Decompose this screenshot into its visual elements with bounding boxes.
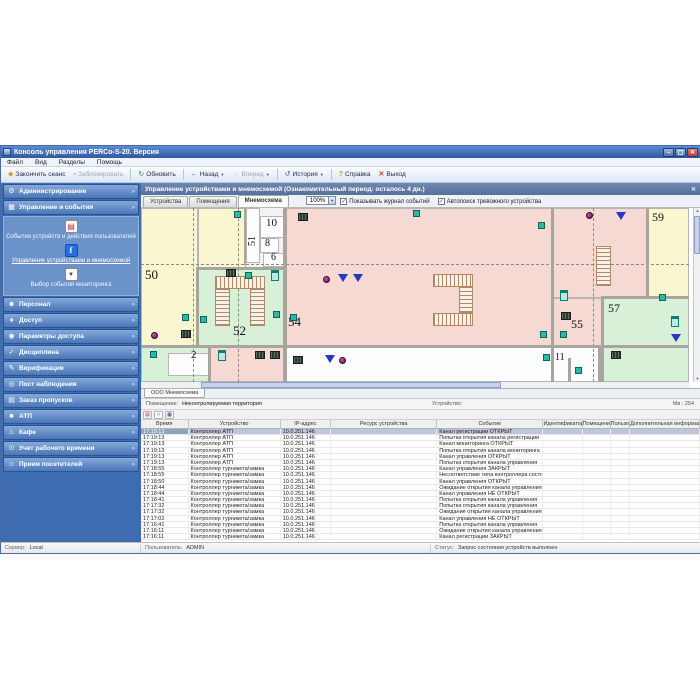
log-cell xyxy=(611,503,631,508)
menu-item-помощь[interactable]: Помощь xyxy=(91,158,128,167)
room-number-label: 8 xyxy=(265,239,270,249)
discipline-icon: ✓ xyxy=(6,347,17,358)
main-panel: Управление устройствами и мнемосхемой (О… xyxy=(141,183,700,542)
log-cell: Канал регистрации ЗАКРЫТ xyxy=(437,534,543,539)
log-cell: Контроллер турникета/замка xyxy=(189,479,281,484)
sidebar-subitem-label: Управление устройствами и мнемосхемой xyxy=(6,258,136,265)
sidebar-section-watch[interactable]: ◎Пост наблюдения» xyxy=(3,377,139,392)
log-cell xyxy=(331,429,437,434)
reader-icon[interactable] xyxy=(245,272,252,279)
control-icon: f xyxy=(65,244,78,257)
log-cell xyxy=(543,534,582,539)
funnel-icon[interactable] xyxy=(616,212,626,220)
map-room[interactable] xyxy=(168,353,210,376)
log-cell: Контроллер турникета/замка xyxy=(189,503,281,508)
log-cell xyxy=(543,503,582,508)
stairs xyxy=(459,287,473,313)
log-cell xyxy=(630,454,700,459)
log-cell xyxy=(611,448,631,453)
log-cell xyxy=(543,497,582,502)
chevron-icon: » xyxy=(132,334,135,340)
room-value: Неконтролируемая территория xyxy=(182,401,262,407)
log-cell xyxy=(583,509,611,514)
menu-bar: ФайлВидРазделыПомощь xyxy=(1,158,700,167)
room-number-label: 57 xyxy=(608,302,620,314)
log-cell xyxy=(611,528,631,533)
camera-icon[interactable] xyxy=(151,332,158,339)
window-title: Консоль управления PERCo-S-20. Версия xyxy=(14,149,662,156)
stairs xyxy=(433,313,473,326)
turnstile-icon[interactable] xyxy=(611,351,621,359)
server-label: Сервер: xyxy=(5,545,26,551)
key-icon: ♦ xyxy=(6,315,17,326)
refresh-icon: ↻ xyxy=(138,171,144,178)
mnemoscheme-tab[interactable]: ООО Мнемосхема xyxy=(144,389,205,398)
log-column-header[interactable]: Помещение xyxy=(583,420,611,428)
log-cell xyxy=(543,491,582,496)
log-cell xyxy=(543,509,582,514)
map-room[interactable] xyxy=(285,347,553,382)
status-bar: Сервер: Local Пользователь: ADMIN Статус… xyxy=(1,542,700,553)
panel-close-icon[interactable]: ✕ xyxy=(691,186,696,193)
reader-icon[interactable] xyxy=(538,222,545,229)
room-number-label: 10 xyxy=(266,218,277,229)
log-cell: 17:18:41 xyxy=(141,497,189,502)
log-cell xyxy=(611,497,631,502)
tab-устройства[interactable]: Устройства xyxy=(143,196,188,207)
log-column-header[interactable]: Пользователь xyxy=(611,420,631,428)
log-cell xyxy=(583,491,611,496)
reader-icon[interactable] xyxy=(575,367,582,374)
toolbar-back-button[interactable]: ←Назад▼ xyxy=(187,170,229,179)
log-cell: 10.0.251.146 xyxy=(281,435,331,440)
sidebar-subitem-monitor[interactable]: ▼Выбор событий мониторинга xyxy=(6,268,136,289)
camera-icon[interactable] xyxy=(323,276,330,283)
sidebar-subitem-control[interactable]: fУправление устройствами и мнемосхемой xyxy=(6,244,136,265)
reader-icon[interactable] xyxy=(290,314,297,321)
log-cell xyxy=(331,516,437,521)
stairs xyxy=(215,289,230,326)
sidebar-subitem-label: События устройств и действия пользовател… xyxy=(6,234,136,241)
sidebar-section-label: АТП xyxy=(19,413,132,420)
log-cell xyxy=(611,485,631,490)
session-icon: ◆ xyxy=(8,171,13,178)
log-cell xyxy=(583,479,611,484)
sidebar-section-label: Кафе xyxy=(19,429,132,436)
log-cell: Ожидание открытия канала управления xyxy=(437,528,543,533)
sidebar-section-label: Учет рабочего времени xyxy=(19,445,132,452)
log-cell xyxy=(331,509,437,514)
device-label: Устройство: xyxy=(432,401,462,407)
log-cell: Канал мониторинга ОТКРЫТ xyxy=(437,441,543,446)
sidebar-section-time[interactable]: ⊙Учет рабочего времени» xyxy=(3,441,139,456)
map-horizontal-scrollbar[interactable] xyxy=(141,381,689,388)
reader-icon[interactable] xyxy=(540,331,547,338)
pass-icon: ▤ xyxy=(6,395,17,406)
sidebar-section-label: Администрирование xyxy=(19,188,132,195)
log-cell xyxy=(630,441,700,446)
log-cell xyxy=(611,491,631,496)
log-cell: 10.0.251.146 xyxy=(281,522,331,527)
log-cell xyxy=(611,509,631,514)
chevron-icon: » xyxy=(132,366,135,372)
sidebar-section-pass[interactable]: ▤Заказ пропусков» xyxy=(3,393,139,408)
turnstile-icon[interactable] xyxy=(561,312,571,320)
log-cell xyxy=(630,534,700,539)
funnel-icon[interactable] xyxy=(671,334,681,342)
log-cell xyxy=(331,448,437,453)
log-cell xyxy=(583,516,611,521)
toolbar-separator xyxy=(130,169,131,180)
lock-icon: ▪ xyxy=(74,171,76,178)
toolbar-button-label: Закончить сеанс xyxy=(15,171,65,178)
log-cell: Попытка открытия канала управления xyxy=(437,503,543,508)
chevron-icon: » xyxy=(132,398,135,404)
log-cell xyxy=(611,441,631,446)
log-cell: Контроллер турникета/замка xyxy=(189,509,281,514)
chevron-icon: » xyxy=(132,430,135,436)
log-cell: Попытка открытия канала управления xyxy=(437,522,543,527)
log-cell: Несоответствие типа контроллера состояни… xyxy=(437,472,543,477)
reader-icon[interactable] xyxy=(234,211,241,218)
log-cell xyxy=(543,460,582,465)
door-icon[interactable] xyxy=(671,316,679,327)
turnstile-icon[interactable] xyxy=(181,330,191,338)
log-cell xyxy=(583,466,611,471)
log-cell xyxy=(583,441,611,446)
log-column-header[interactable]: Событие xyxy=(437,420,543,428)
room-number-label: 50 xyxy=(145,268,158,281)
close-button[interactable]: ✕ xyxy=(687,148,698,157)
log-cell: Попытка открытия канала управления xyxy=(437,497,543,502)
log-cell xyxy=(543,516,582,521)
sidebar-section-gear[interactable]: ⚙Администрирование» xyxy=(3,184,139,199)
sidebar-section-label: Управление и события xyxy=(19,204,132,211)
log-cell: 17:19:13 xyxy=(141,429,189,434)
sidebar-subitem-log[interactable]: ▤События устройств и действия пользовате… xyxy=(6,220,136,241)
chevron-icon: » xyxy=(132,189,135,195)
log-cell xyxy=(630,491,700,496)
log-filter-icon[interactable]: ▤ xyxy=(143,411,152,419)
log-cell: Контроллер АТП xyxy=(189,448,281,453)
chevron-down-icon: ▼ xyxy=(320,172,324,177)
log-cell xyxy=(331,522,437,527)
log-cell: Контроллер турникета/замка xyxy=(189,472,281,477)
log-cell: 17:19:13 xyxy=(141,448,189,453)
log-cell xyxy=(630,435,700,440)
chevron-down-icon: ▼ xyxy=(266,172,270,177)
log-cell xyxy=(583,472,611,477)
events-icon: ▦ xyxy=(6,202,17,213)
sidebar-section-cafe[interactable]: ♨Кафе» xyxy=(3,425,139,440)
stairs xyxy=(215,276,265,289)
menu-item-разделы[interactable]: Разделы xyxy=(53,158,91,167)
user-label: Пользователь: xyxy=(145,545,182,551)
map-vertical-scrollbar[interactable]: ▲ ▼ xyxy=(693,208,700,382)
reader-icon[interactable] xyxy=(182,314,189,321)
floor-plan[interactable]: 505110865254555957211 xyxy=(141,208,689,382)
log-cell: Контроллер турникета/замка xyxy=(189,516,281,521)
log-icon: ▤ xyxy=(65,220,78,233)
sidebar-section-events[interactable]: ▦Управление и события» xyxy=(3,200,139,215)
sidebar-section-visitors[interactable]: ☺Прием посетителей» xyxy=(3,457,139,472)
log-cell xyxy=(331,472,437,477)
exit-icon: ✕ xyxy=(379,171,385,178)
sidebar: ⚙Администрирование»▦Управление и события… xyxy=(1,183,141,542)
print-icon[interactable]: ▦ xyxy=(165,411,174,419)
log-cell xyxy=(331,454,437,459)
log-cell: Контроллер турникета/замка xyxy=(189,466,281,471)
room-number-label: 59 xyxy=(652,211,664,223)
log-cell: 10.0.251.146 xyxy=(281,497,331,502)
log-cell xyxy=(630,460,700,465)
log-cell: Канал управления ОТКРЫТ xyxy=(437,454,543,459)
toolbar-separator xyxy=(277,169,278,180)
log-column-header[interactable]: Время xyxy=(141,420,189,428)
log-cell: 10.0.251.146 xyxy=(281,448,331,453)
turnstile-icon[interactable] xyxy=(298,213,308,221)
log-cell: 17:19:13 xyxy=(141,454,189,459)
toolbar-forward-button: →Вперед▼ xyxy=(228,170,273,179)
stairs xyxy=(433,274,473,287)
log-cell xyxy=(543,528,582,533)
chevron-down-icon: ▼ xyxy=(220,172,224,177)
chevron-icon: » xyxy=(132,462,135,468)
chevron-icon: » xyxy=(132,205,135,211)
reader-icon[interactable] xyxy=(659,294,666,301)
log-cell: Попытка открытия канала мониторинга xyxy=(437,448,543,453)
stairs xyxy=(596,246,611,286)
tab-row: УстройстваПомещенияМнемосхема 100% ▼ ✓ П… xyxy=(141,195,700,208)
log-cell: 10.0.251.146 xyxy=(281,491,331,496)
chevron-icon: » xyxy=(132,318,135,324)
status-label: Статус: xyxy=(435,545,454,551)
log-cell xyxy=(611,435,631,440)
room-number-label: 55 xyxy=(571,318,583,330)
sidebar-section-person[interactable]: ☻Персонал» xyxy=(3,297,139,312)
log-cell: 17:18:44 xyxy=(141,485,189,490)
history-icon: ↺ xyxy=(285,171,291,178)
log-row[interactable]: 17:16:11Контроллер турникета/замка10.0.2… xyxy=(141,534,700,540)
watch-icon: ◎ xyxy=(6,379,17,390)
log-cell xyxy=(630,522,700,527)
event-log-body: 17:19:13Контроллер АТП10.0.251.146Канал … xyxy=(141,429,700,540)
log-cell xyxy=(630,429,700,434)
log-cell xyxy=(331,503,437,508)
log-cell xyxy=(543,485,582,490)
log-cell xyxy=(543,522,582,527)
sidebar-section-key[interactable]: ♦Доступ» xyxy=(3,313,139,328)
log-cell: 10.0.251.146 xyxy=(281,472,331,477)
camera-icon[interactable] xyxy=(339,357,346,364)
log-cell xyxy=(543,454,582,459)
title-bar[interactable]: Консоль управления PERCo-S-20. Версия – … xyxy=(1,146,700,158)
log-cell xyxy=(583,454,611,459)
sidebar-section-params[interactable]: ◉Параметры доступа» xyxy=(3,329,139,344)
log-cell: Контроллер АТП xyxy=(189,435,281,440)
door-icon[interactable] xyxy=(271,270,279,281)
room-number-label: 52 xyxy=(233,324,246,337)
tab-помещения[interactable]: Помещения xyxy=(189,196,236,207)
sidebar-section-label: Доступ xyxy=(19,317,132,324)
checkbox-check-icon: ✓ xyxy=(438,198,445,205)
log-cell: 10.0.251.146 xyxy=(281,534,331,539)
log-cell xyxy=(630,466,700,471)
forward-icon: → xyxy=(232,171,239,178)
log-cell xyxy=(630,472,700,477)
log-cell xyxy=(543,472,582,477)
help-icon: ? xyxy=(339,171,343,178)
log-cell xyxy=(331,479,437,484)
toolbar-history-button[interactable]: ↺История▼ xyxy=(281,170,328,179)
turnstile-icon[interactable] xyxy=(255,351,265,359)
toolbar: ◆Закончить сеанс▪Заблокировать↻Обновить←… xyxy=(1,167,700,183)
stairs xyxy=(250,289,265,326)
log-column-header[interactable]: Идентификатор xyxy=(543,420,582,428)
log-column-header[interactable]: Дополнительная информация xyxy=(630,420,700,428)
sidebar-section-label: Параметры доступа xyxy=(19,333,132,340)
sidebar-section-discipline[interactable]: ✓Дисциплина» xyxy=(3,345,139,360)
map-status-bar: Помещение: Неконтролируемая территория У… xyxy=(141,399,700,410)
reader-icon[interactable] xyxy=(543,354,550,361)
log-cell: Ожидание открытия канала управления xyxy=(437,485,543,490)
toolbar-refresh-button[interactable]: ↻Обновить xyxy=(134,170,179,179)
log-cell xyxy=(543,466,582,471)
toolbar-button-label: Выход xyxy=(386,171,405,178)
log-cell xyxy=(583,435,611,440)
log-cell: 10.0.251.146 xyxy=(281,479,331,484)
toolbar-exit-button[interactable]: ✕Выход xyxy=(375,170,410,179)
log-cell: 17:18:55 xyxy=(141,466,189,471)
chevron-icon: » xyxy=(132,446,135,452)
log-cell: 10.0.251.146 xyxy=(281,528,331,533)
chevron-icon: » xyxy=(132,382,135,388)
log-cell: 10.0.251.146 xyxy=(281,503,331,508)
log-cell: 17:16:41 xyxy=(141,522,189,527)
minimize-button[interactable]: – xyxy=(663,148,674,157)
log-cell: 17:16:11 xyxy=(141,534,189,539)
user-value: ADMIN xyxy=(186,545,204,551)
funnel-icon[interactable] xyxy=(325,355,335,363)
room-number-label: 6 xyxy=(271,253,276,263)
reader-icon[interactable] xyxy=(560,331,567,338)
sidebar-section-verify[interactable]: ✎Верификация» xyxy=(3,361,139,376)
log-cell: Канал регистрации ОТКРЫТ xyxy=(437,429,543,434)
chevron-down-icon[interactable]: ▼ xyxy=(328,197,335,204)
log-column-header[interactable]: IP-адрес xyxy=(281,420,331,428)
log-cell xyxy=(583,448,611,453)
funnel-icon[interactable] xyxy=(338,274,348,282)
log-cell: 17:19:13 xyxy=(141,435,189,440)
log-cell xyxy=(630,509,700,514)
mnemoscheme-area: 505110865254555957211 ▲ ▼ xyxy=(141,208,700,389)
toolbar-help-button[interactable]: ?Справка xyxy=(335,170,375,179)
autosearch-checkbox[interactable]: ✓ Автопоиск тревожного устройства xyxy=(438,198,542,205)
log-cell: Канал управления НЕ ОТКРЫТ xyxy=(437,516,543,521)
maximize-button[interactable]: ▢ xyxy=(675,148,686,157)
visitors-icon: ☺ xyxy=(6,459,17,470)
log-cell xyxy=(543,479,582,484)
chevron-icon: » xyxy=(132,414,135,420)
toolbar-session-button[interactable]: ◆Закончить сеанс xyxy=(4,170,70,179)
show-log-checkbox[interactable]: ✓ Показывать журнал событий xyxy=(340,198,429,205)
clear-log-icon[interactable]: ✕ xyxy=(154,411,163,419)
log-cell xyxy=(331,497,437,502)
log-cell: 10.0.251.146 xyxy=(281,441,331,446)
zoom-select[interactable]: 100% ▼ xyxy=(306,196,336,205)
reader-icon[interactable] xyxy=(150,351,157,358)
turnstile-icon[interactable] xyxy=(270,351,280,359)
menu-item-файл[interactable]: Файл xyxy=(1,158,29,167)
log-cell: 17:16:11 xyxy=(141,528,189,533)
turnstile-icon[interactable] xyxy=(226,269,236,277)
door-icon[interactable] xyxy=(560,290,568,301)
log-cell xyxy=(583,522,611,527)
log-cell: Канал управления НЕ ОТКРЫТ xyxy=(437,491,543,496)
room-number-label: 2 xyxy=(191,350,197,361)
menu-item-вид[interactable]: Вид xyxy=(29,158,53,167)
log-cell: 10.0.251.146 xyxy=(281,516,331,521)
log-cell xyxy=(543,441,582,446)
toolbar-button-label: История xyxy=(293,171,318,178)
panel-title-bar: Управление устройствами и мнемосхемой (О… xyxy=(141,183,700,195)
camera-icon[interactable] xyxy=(586,212,593,219)
log-cell xyxy=(630,497,700,502)
log-cell: 17:18:44 xyxy=(141,491,189,496)
log-cell: Контроллер турникета/замка xyxy=(189,491,281,496)
verify-icon: ✎ xyxy=(6,363,17,374)
event-log: ВремяУстройствоIP-адресРесурс устройства… xyxy=(141,420,700,542)
server-value: Local xyxy=(30,545,43,551)
log-cell xyxy=(611,534,631,539)
app-window: Консоль управления PERCo-S-20. Версия – … xyxy=(0,145,700,554)
sidebar-subitem-label: Выбор событий мониторинга xyxy=(6,282,136,289)
log-cell: Попытка открытия канала регистрации xyxy=(437,435,543,440)
panel-title: Управление устройствами и мнемосхемой (О… xyxy=(145,186,691,193)
log-cell xyxy=(630,516,700,521)
door-icon[interactable] xyxy=(218,350,226,361)
room-number-label: 51 xyxy=(248,236,258,246)
log-cell: Попытка открытия канала управления xyxy=(437,460,543,465)
log-column-header[interactable]: Ресурс устройства xyxy=(331,420,437,428)
log-cell xyxy=(611,454,631,459)
monitor-icon: ▼ xyxy=(65,268,78,281)
sidebar-section-atp[interactable]: ■АТП» xyxy=(3,409,139,424)
log-cell xyxy=(331,435,437,440)
log-column-header[interactable]: Устройство xyxy=(189,420,281,428)
log-cell: 10.0.251.146 xyxy=(281,454,331,459)
log-cell xyxy=(583,485,611,490)
toolbar-separator xyxy=(183,169,184,180)
log-cell: 17:17:32 xyxy=(141,503,189,508)
reader-icon[interactable] xyxy=(273,311,280,318)
toolbar-lock-button: ▪Заблокировать xyxy=(70,170,128,179)
reader-icon[interactable] xyxy=(200,316,207,323)
room-number-label: 11 xyxy=(555,353,565,363)
sidebar-section-label: Пост наблюдения xyxy=(19,381,132,388)
tab-мнемосхема[interactable]: Мнемосхема xyxy=(238,195,289,207)
log-cell: Контроллер турникета/замка xyxy=(189,485,281,490)
chevron-icon: » xyxy=(132,350,135,356)
log-cell xyxy=(583,460,611,465)
log-cell: Контроллер турникета/замка xyxy=(189,528,281,533)
toolbar-separator xyxy=(331,169,332,180)
turnstile-icon[interactable] xyxy=(293,356,303,364)
reader-icon[interactable] xyxy=(413,210,420,217)
funnel-icon[interactable] xyxy=(353,274,363,282)
log-cell xyxy=(630,448,700,453)
log-cell xyxy=(543,429,582,434)
